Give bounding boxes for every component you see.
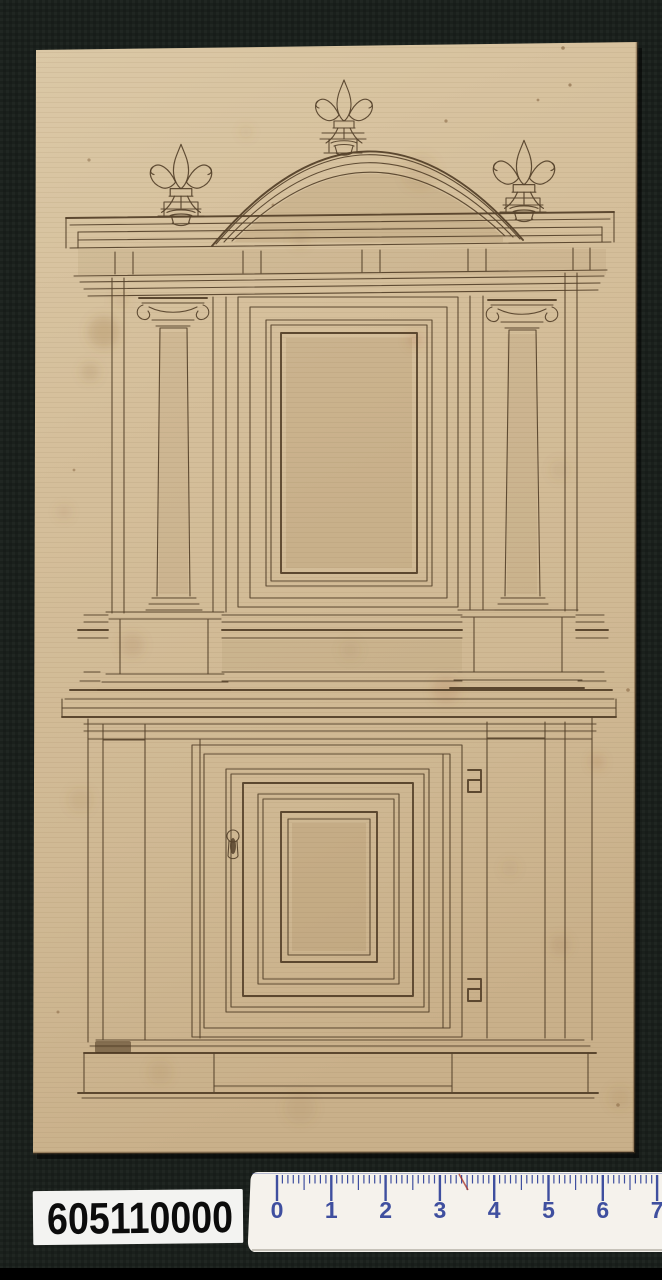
ruler-number: 6 [596, 1197, 609, 1223]
ruler-number: 4 [488, 1197, 501, 1223]
ruler-number: 3 [434, 1197, 447, 1223]
bottom-black-bar [0, 1268, 662, 1280]
ruler-number: 1 [325, 1197, 338, 1223]
ruler-number: 5 [542, 1197, 555, 1223]
ruler: 01234567 [248, 1172, 662, 1252]
ruler-number: 2 [379, 1197, 392, 1223]
ruler-number: 0 [271, 1197, 284, 1223]
catalog-label: 605110000 [33, 1189, 244, 1245]
catalog-number: 605110000 [47, 1193, 234, 1244]
photo-canvas: 605110000 01234567 [0, 0, 662, 1280]
ruler-number: 7 [651, 1197, 662, 1223]
